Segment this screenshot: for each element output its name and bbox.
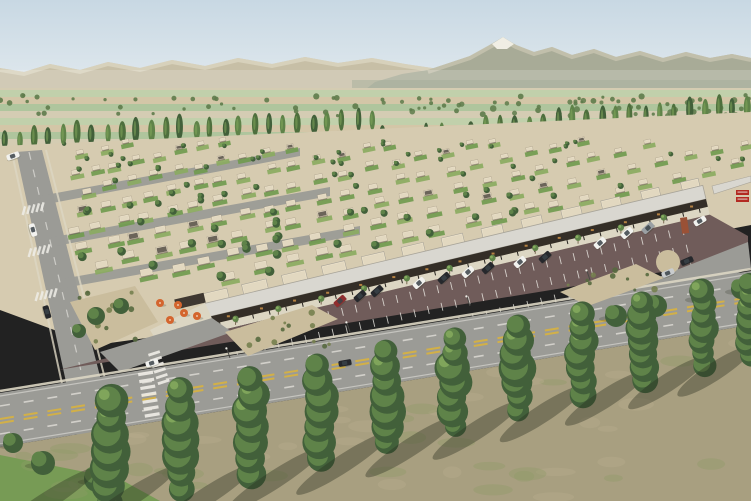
- tree-canopy-light: [238, 368, 256, 386]
- orchard-tree: [616, 99, 620, 103]
- yard-tree-highlight: [222, 144, 225, 147]
- shrub: [286, 323, 290, 327]
- orchard-tree: [118, 105, 123, 110]
- shrub: [271, 339, 277, 345]
- roadside-tree-highlight: [3, 433, 15, 445]
- umbrella-pole: [183, 312, 185, 314]
- yard-tree-highlight: [84, 156, 87, 159]
- poplar-highlight: [253, 116, 255, 130]
- poplar-highlight: [195, 124, 197, 135]
- yard-tree-highlight: [112, 178, 116, 182]
- shrub: [588, 281, 592, 285]
- yard-tree-highlight: [336, 150, 339, 153]
- storefront-glow: [227, 315, 230, 317]
- yard-tree-highlight: [348, 172, 352, 176]
- orchard-tree: [313, 93, 319, 99]
- poplar-highlight: [46, 130, 48, 142]
- orchard-tree: [537, 105, 541, 109]
- palm-highlight: [618, 225, 621, 228]
- orchard-tree: [698, 97, 703, 102]
- billboard-text-band: [738, 192, 748, 193]
- scrub-patch: [50, 443, 91, 454]
- shrub: [283, 321, 286, 324]
- orchard-tree: [697, 106, 700, 109]
- palm-tree: [618, 224, 624, 230]
- storefront-glow: [558, 237, 561, 239]
- orchard-tree: [71, 97, 74, 100]
- scrub-patch: [604, 475, 623, 482]
- yard-tree-highlight: [272, 220, 277, 225]
- tree-canopy-glint: [170, 381, 178, 389]
- yard-tree-highlight: [381, 142, 384, 145]
- yard-tree-highlight: [506, 192, 510, 196]
- yard-tree-highlight: [489, 144, 492, 147]
- palm-tree: [404, 275, 410, 281]
- yard-tree-highlight: [438, 157, 441, 160]
- parking-stripe: [359, 322, 361, 330]
- yard-tree-highlight: [273, 250, 279, 256]
- orchard-tree: [652, 113, 655, 116]
- streetlight-head: [465, 295, 467, 297]
- umbrella-pole: [169, 319, 171, 321]
- orchard-tree: [417, 96, 421, 100]
- yard-tree-highlight: [404, 214, 409, 219]
- shrub: [310, 323, 315, 328]
- orchard-tree: [152, 112, 155, 115]
- shrub: [281, 328, 285, 332]
- yard-tree-highlight: [120, 156, 123, 159]
- orchard-tree: [36, 111, 41, 116]
- storefront-glow: [293, 300, 296, 302]
- tree-canopy-glint: [446, 331, 453, 338]
- scrub-patch: [443, 466, 462, 478]
- yard-tree-highlight: [242, 244, 248, 250]
- yard-tree-highlight: [218, 240, 223, 245]
- yard-tree-highlight: [149, 261, 155, 267]
- yard-tree-highlight: [437, 148, 440, 151]
- orchard-tree: [581, 98, 587, 104]
- scrub-patch: [597, 457, 625, 468]
- shrub: [130, 291, 134, 295]
- orchard-tree: [103, 98, 106, 101]
- roadside-tree-highlight: [605, 305, 619, 319]
- yard-tree-highlight: [204, 164, 207, 167]
- tree-canopy-glint: [692, 282, 700, 290]
- orchard-tree: [516, 101, 521, 106]
- umbrella-pole: [196, 315, 198, 317]
- shrub: [270, 316, 274, 320]
- palm-tree: [660, 214, 666, 220]
- yard-tree-highlight: [170, 208, 175, 213]
- poplar-highlight: [717, 98, 719, 114]
- scrub-patch: [378, 479, 406, 490]
- shrub: [610, 273, 616, 279]
- field-stripe: [0, 97, 751, 104]
- orchard-tree: [212, 96, 217, 101]
- billboard-text-band: [738, 199, 748, 200]
- orchard-tree: [382, 101, 386, 105]
- tree-canopy-glint: [633, 295, 640, 302]
- poplar-highlight: [730, 101, 732, 113]
- poplar-highlight: [312, 118, 314, 130]
- orchard-tree: [42, 111, 47, 116]
- yard-tree-highlight: [198, 197, 202, 201]
- yard-tree-highlight: [198, 193, 202, 197]
- yard-tree-highlight: [551, 193, 555, 197]
- orchard-tree: [505, 101, 510, 106]
- yard-tree-highlight: [332, 172, 336, 176]
- roadside-tree-highlight: [32, 452, 47, 467]
- shrub: [567, 283, 570, 286]
- yard-tree-highlight: [270, 208, 275, 213]
- scrub-patch: [406, 403, 439, 414]
- orchard-tree: [417, 107, 420, 110]
- aerial-site-rendering: [0, 0, 751, 501]
- orchard-tree: [631, 98, 636, 103]
- shrub: [626, 277, 629, 280]
- orchard-tree: [490, 105, 497, 112]
- scrub-patch: [473, 484, 512, 495]
- yard-tree-highlight: [181, 143, 184, 146]
- palm-tree: [232, 316, 238, 322]
- yard-tree-highlight: [472, 213, 477, 218]
- orchard-tree: [591, 98, 597, 104]
- parking-stripe: [332, 329, 334, 337]
- orchard-tree: [332, 96, 336, 100]
- yard-tree-highlight: [85, 206, 90, 211]
- shrub: [591, 272, 596, 277]
- storefront-glow: [690, 206, 693, 208]
- yard-tree-highlight: [155, 166, 158, 169]
- yard-tree-highlight: [339, 161, 342, 164]
- poplar-highlight: [61, 127, 63, 141]
- poplar-highlight: [75, 123, 77, 138]
- palm-highlight: [404, 276, 407, 279]
- shrub: [586, 279, 589, 282]
- orchard-tree: [206, 104, 211, 109]
- yard-tree-highlight: [217, 272, 223, 278]
- palm-tree: [275, 306, 281, 312]
- yard-tree-highlight: [211, 225, 216, 230]
- yard-tree-highlight: [127, 202, 131, 206]
- scrub-patch: [473, 462, 505, 471]
- yard-tree-highlight: [314, 155, 317, 158]
- poplar-highlight: [357, 111, 359, 125]
- streetlight-head: [225, 347, 227, 349]
- orchard-tree: [171, 96, 176, 101]
- storefront-glow: [260, 307, 263, 309]
- yard-tree-highlight: [463, 192, 467, 196]
- tree-canopy-light: [96, 387, 120, 411]
- palm-highlight: [233, 316, 236, 319]
- orchard-tree: [25, 100, 28, 103]
- yard-tree-highlight: [250, 157, 253, 160]
- poplar-highlight: [32, 129, 34, 143]
- palm-tree: [318, 295, 324, 301]
- parking-stripe: [373, 319, 375, 327]
- orchard-tree: [133, 97, 137, 101]
- poplar-highlight: [207, 120, 209, 134]
- orchard-tree: [409, 108, 412, 111]
- shrub: [645, 273, 649, 277]
- palm-highlight: [319, 296, 322, 299]
- yard-tree-highlight: [169, 190, 173, 194]
- poplar-highlight: [120, 124, 122, 137]
- poplar-highlight: [281, 118, 283, 130]
- yard-tree-highlight: [618, 183, 622, 187]
- shrub: [633, 288, 636, 291]
- field-stripe: [0, 90, 751, 97]
- poplar-highlight: [236, 119, 238, 131]
- yard-tree-highlight: [510, 164, 513, 167]
- yard-tree-highlight: [333, 240, 338, 245]
- streetlight-pole: [347, 323, 350, 332]
- poplar-highlight: [134, 121, 136, 137]
- orchard-tree: [446, 98, 451, 103]
- poplar-highlight: [3, 133, 5, 144]
- shrub: [104, 326, 108, 330]
- yard-tree-highlight: [381, 210, 386, 215]
- palm-tree: [446, 265, 452, 271]
- yard-tree-highlight: [529, 175, 533, 179]
- orchard-tree: [601, 96, 604, 99]
- orchard-tree: [429, 98, 432, 101]
- yard-tree-highlight: [256, 155, 259, 158]
- palm-highlight: [276, 306, 279, 309]
- shrub: [247, 342, 253, 348]
- shrub: [309, 309, 315, 315]
- poplar-highlight: [370, 114, 372, 126]
- poplar-highlight: [339, 112, 341, 125]
- shrub: [651, 286, 657, 292]
- orchard-tree: [46, 105, 51, 110]
- orchard-tree: [639, 93, 645, 99]
- shrub: [612, 267, 618, 273]
- poplar-highlight: [745, 99, 747, 113]
- orchard-tree: [182, 107, 185, 110]
- orchard-tree: [7, 100, 13, 106]
- orchard-tree: [610, 97, 615, 102]
- palm-highlight: [447, 266, 450, 269]
- orchard-tree: [264, 98, 269, 103]
- orchard-tree: [352, 103, 358, 109]
- tree-canopy-light: [168, 379, 187, 398]
- yard-tree-highlight: [78, 252, 84, 258]
- orchard-tree: [429, 101, 433, 105]
- yard-tree-highlight: [565, 141, 568, 144]
- orchard-tree: [191, 97, 196, 102]
- orchard-tree: [518, 94, 524, 100]
- yard-tree-highlight: [188, 239, 193, 244]
- shrub: [128, 306, 134, 312]
- scrub-patch: [697, 458, 725, 470]
- storefront-glow: [657, 213, 660, 215]
- tree-canopy-light: [375, 341, 392, 358]
- orchard-tree: [34, 94, 39, 99]
- orchard-tree: [437, 107, 441, 111]
- yard-tree-highlight: [371, 241, 376, 246]
- yard-tree-highlight: [116, 163, 119, 166]
- yard-tree-highlight: [62, 141, 65, 144]
- yard-tree-highlight: [552, 158, 555, 161]
- palm-highlight: [576, 235, 579, 238]
- yard-tree-highlight: [716, 156, 719, 159]
- orchard-tree: [459, 102, 464, 107]
- palm-tree: [575, 235, 581, 241]
- tree-canopy-light: [507, 316, 524, 333]
- yard-tree-highlight: [184, 182, 188, 186]
- orchard-tree: [634, 112, 638, 116]
- median-tree-highlight: [72, 324, 80, 332]
- parking-stripe: [346, 325, 348, 333]
- yard-tree-highlight: [117, 247, 123, 253]
- poplar-highlight: [295, 116, 297, 129]
- storefront-glow: [392, 276, 395, 278]
- umbrella-pole: [159, 302, 161, 304]
- palm-tree: [489, 255, 495, 261]
- storefront-glow: [425, 268, 428, 270]
- scrub-patch: [15, 452, 32, 460]
- storefront-glow: [591, 229, 594, 231]
- scene-canvas: [0, 0, 751, 501]
- yard-tree-highlight: [394, 161, 397, 164]
- shrub: [94, 339, 98, 343]
- field-stripe: [0, 111, 751, 118]
- poplar-highlight: [325, 115, 327, 127]
- storefront-glow: [492, 253, 495, 255]
- yard-tree-highlight: [509, 209, 514, 214]
- shrub: [133, 337, 138, 342]
- yard-tree-highlight: [361, 207, 366, 212]
- scrub-patch: [598, 426, 618, 432]
- yard-tree-highlight: [460, 171, 464, 175]
- streetlight-head: [585, 269, 587, 271]
- yard-tree-highlight: [330, 159, 333, 162]
- yard-tree-highlight: [108, 152, 111, 155]
- yard-tree-highlight: [573, 140, 576, 143]
- storefront-glow: [525, 245, 528, 247]
- orchard-tree: [577, 97, 580, 100]
- orchard-tree: [232, 107, 235, 110]
- yard-tree-highlight: [347, 209, 352, 214]
- yard-tree-highlight: [221, 191, 225, 195]
- yard-tree-highlight: [460, 142, 463, 145]
- orchard-tree: [336, 114, 339, 117]
- palm-highlight: [490, 256, 493, 259]
- scrub-patch: [125, 463, 153, 476]
- poplar-highlight: [177, 118, 179, 134]
- yard-tree-highlight: [155, 200, 159, 204]
- shrub: [78, 296, 82, 300]
- median-tree-highlight: [88, 308, 99, 319]
- shrub: [322, 344, 327, 349]
- poplar-highlight: [164, 120, 166, 135]
- yard-tree-highlight: [76, 166, 79, 169]
- storefront-glow: [624, 221, 627, 223]
- shrub: [106, 307, 112, 313]
- poplar-highlight: [89, 128, 91, 140]
- yard-tree-highlight: [353, 183, 357, 187]
- yard-tree-highlight: [272, 235, 277, 240]
- yard-tree-highlight: [426, 229, 431, 234]
- orchard-tree: [512, 111, 517, 116]
- yard-tree-highlight: [137, 218, 142, 223]
- orchard-tree: [739, 106, 744, 111]
- poplar-highlight: [224, 122, 226, 133]
- yard-tree-highlight: [253, 184, 257, 188]
- orchard-tree: [636, 105, 641, 110]
- shrub: [312, 340, 316, 344]
- orchard-tree: [400, 100, 404, 104]
- yard-tree-highlight: [484, 187, 488, 191]
- storefront-glow: [458, 260, 461, 262]
- streetlight-head: [345, 321, 347, 323]
- palm-highlight: [362, 286, 365, 289]
- orchard-tree: [567, 100, 572, 105]
- orchard-tree: [22, 94, 25, 97]
- tree-canopy-light: [306, 355, 323, 372]
- poplar-highlight: [267, 116, 269, 129]
- orchard-tree: [423, 106, 426, 109]
- shrub: [85, 291, 90, 296]
- shrub: [255, 337, 260, 342]
- palm-highlight: [661, 215, 664, 218]
- orchard-tree: [454, 108, 459, 113]
- parking-stripe: [387, 316, 389, 324]
- storefront-glow: [359, 284, 362, 286]
- yard-tree-highlight: [265, 267, 271, 273]
- yard-tree-highlight: [740, 157, 743, 160]
- orchard-tree: [442, 103, 446, 107]
- orchard-tree: [599, 101, 603, 105]
- orchard-tree: [665, 102, 669, 106]
- palm-tree: [532, 245, 538, 251]
- poplar-highlight: [688, 100, 690, 116]
- orchard-tree: [116, 112, 120, 116]
- tree-canopy-glint: [573, 305, 581, 313]
- scrub-patch: [509, 467, 547, 480]
- poplar-highlight: [106, 127, 108, 139]
- yard-tree-highlight: [128, 161, 131, 164]
- shrub: [327, 342, 331, 346]
- poplar-highlight: [150, 123, 152, 137]
- poplar-highlight: [18, 134, 20, 145]
- tree-canopy-glint: [99, 389, 110, 400]
- palm-highlight: [533, 245, 536, 248]
- yard-tree-highlight: [406, 152, 409, 155]
- orchard-tree: [220, 102, 223, 105]
- orchard-tree: [493, 100, 497, 104]
- median-tree-highlight: [114, 299, 124, 309]
- storefront-glow: [326, 292, 329, 294]
- umbrella-pole: [177, 304, 179, 306]
- yard-tree-highlight: [381, 139, 384, 142]
- orchard-tree: [573, 100, 577, 104]
- yard-tree-highlight: [260, 149, 263, 152]
- yard-tree-highlight: [668, 152, 671, 155]
- scrub-patch: [278, 442, 297, 450]
